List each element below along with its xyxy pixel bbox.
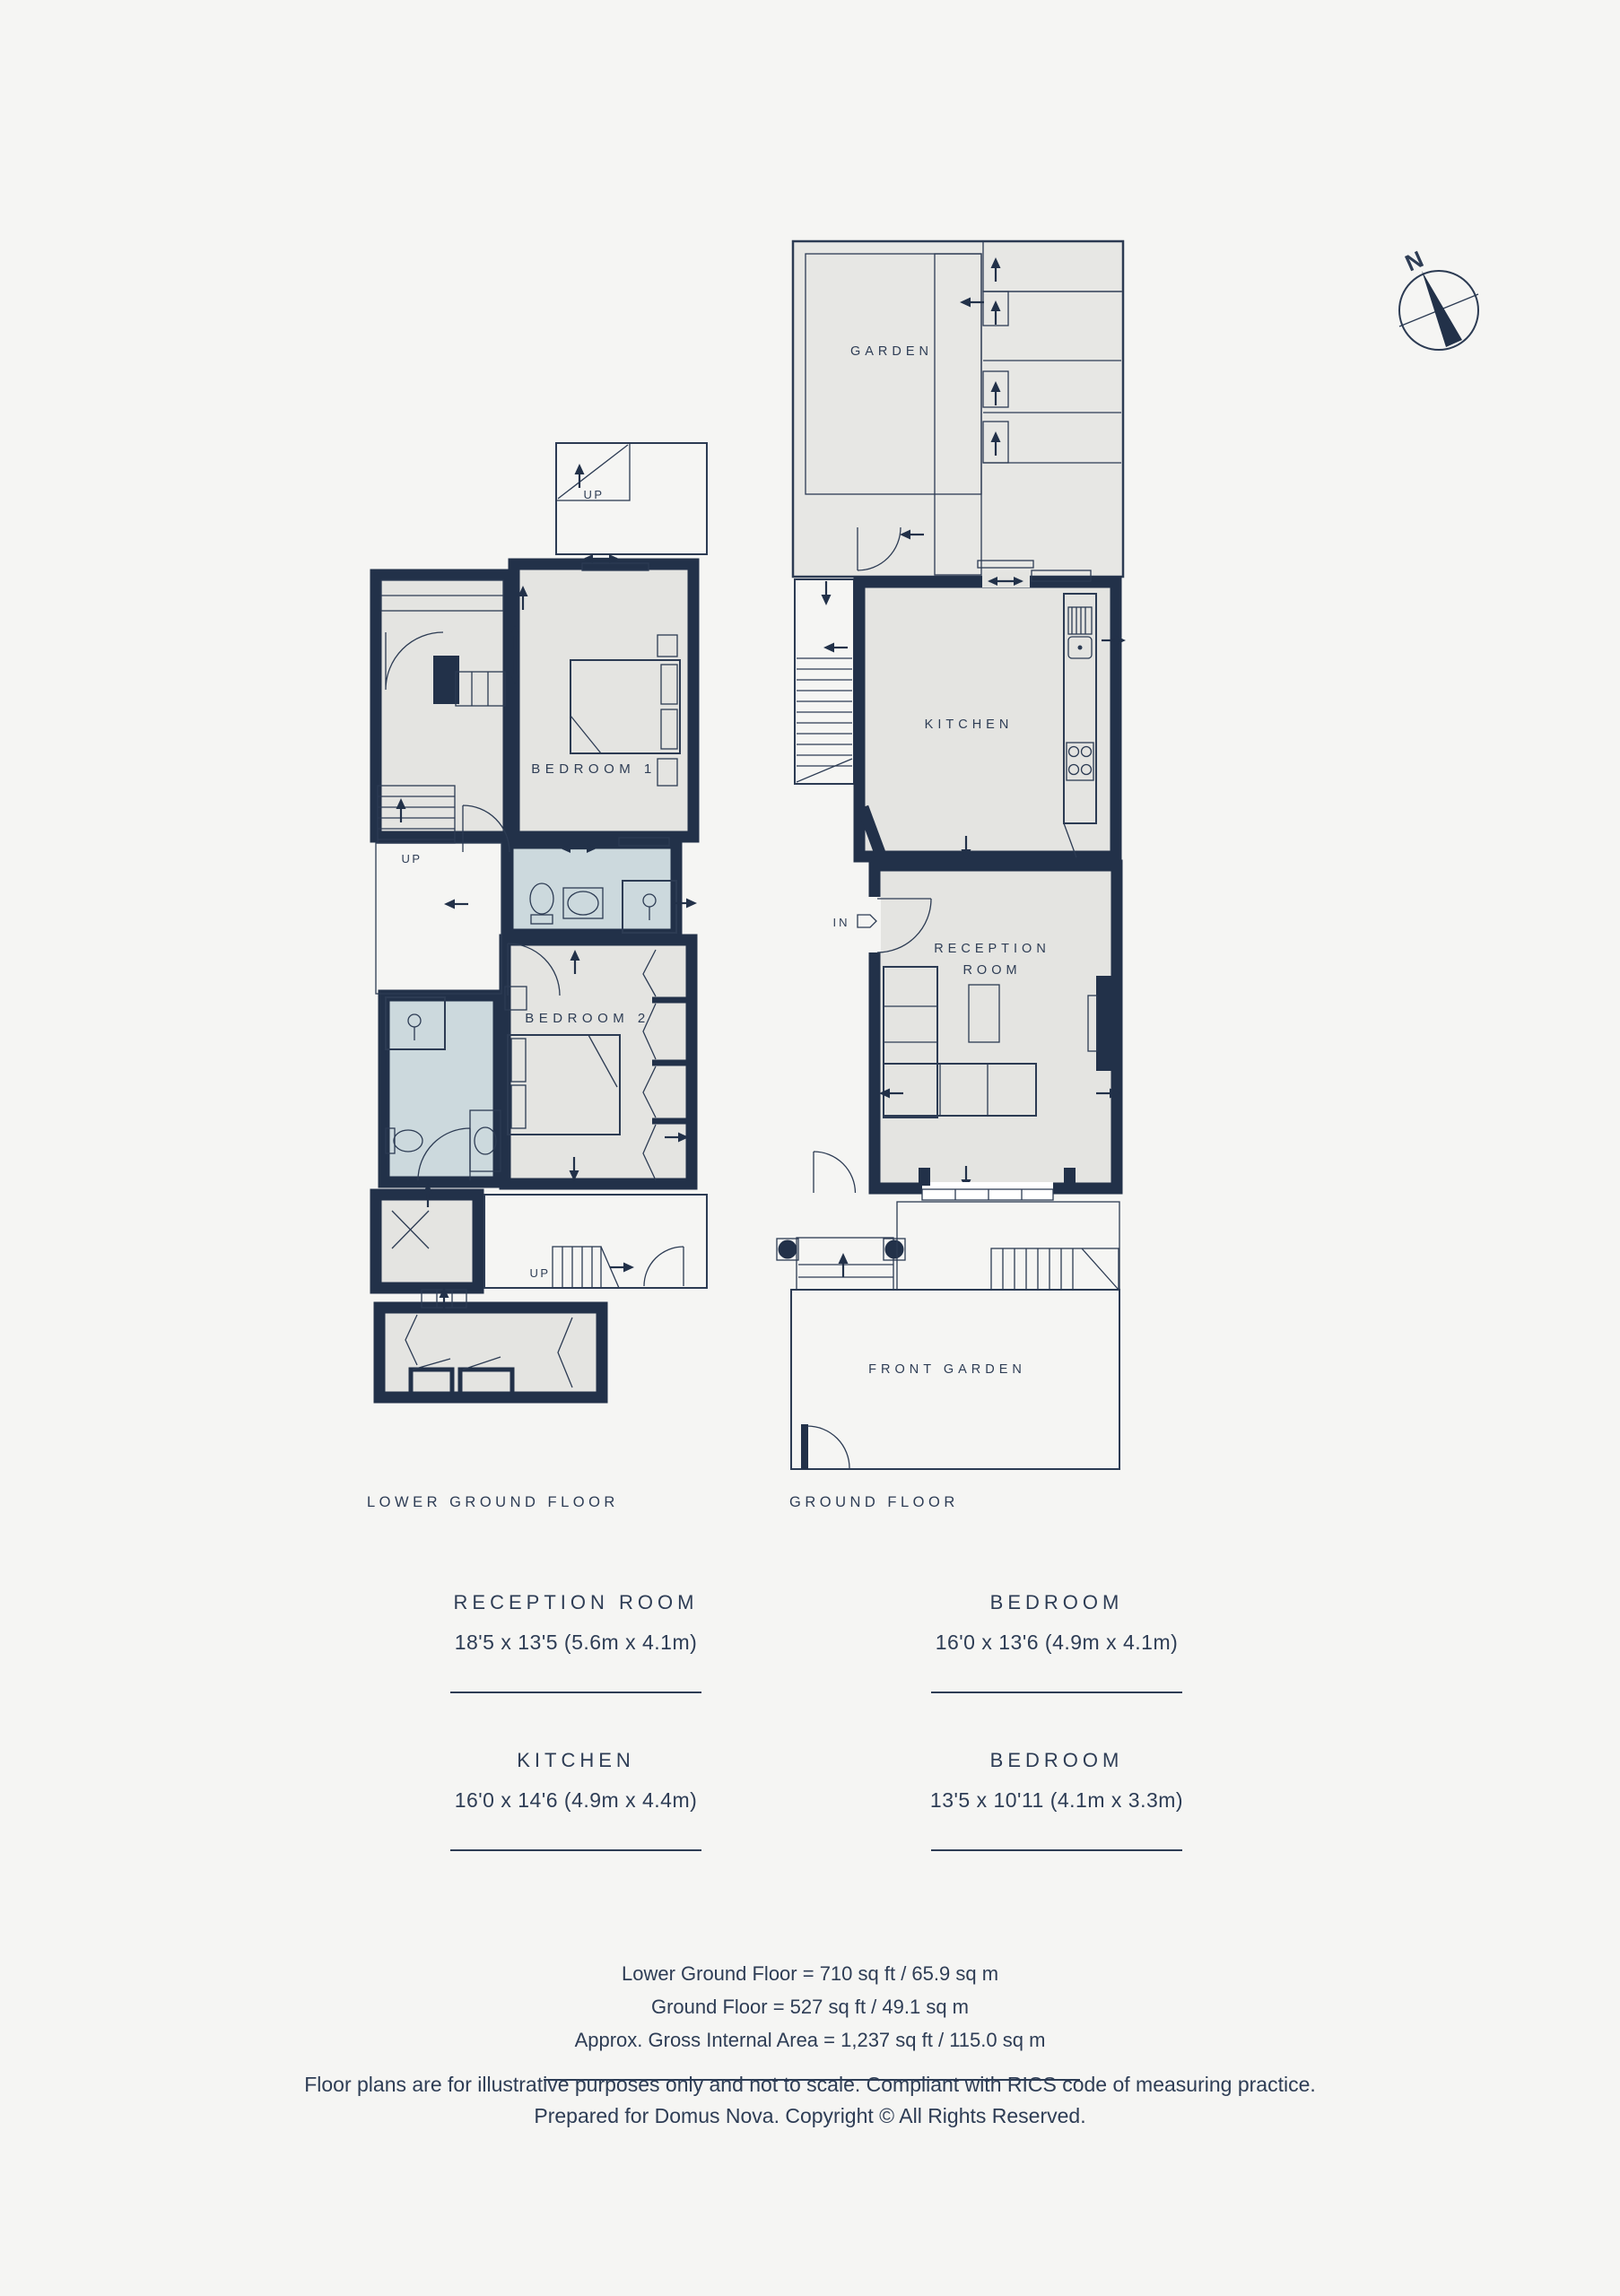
floorplan-page: UP UP	[0, 0, 1620, 2296]
lg-patio-up-label: UP	[529, 1266, 550, 1280]
dim-room-name: BEDROOM	[859, 1591, 1254, 1614]
gf-staircase	[795, 579, 854, 784]
dim-divider	[931, 1849, 1182, 1851]
gf-porch	[777, 1238, 905, 1290]
lg-lobby	[376, 1195, 478, 1288]
gf-gate-door	[807, 1426, 849, 1468]
dim-room-size: 16'0 x 13'6 (4.9m x 4.1m)	[859, 1631, 1254, 1655]
dim-block-reception: RECEPTION ROOM 18'5 x 13'5 (5.6m x 4.1m)	[379, 1591, 773, 1655]
compass-needle	[1422, 271, 1462, 347]
compass-north-label: N	[1401, 245, 1427, 276]
footer-copyright: Prepared for Domus Nova. Copyright © All…	[0, 2104, 1620, 2128]
footer-disclaimer: Floor plans are for illustrative purpose…	[0, 2073, 1620, 2097]
front-garden-label: FRONT GARDEN	[868, 1362, 1026, 1377]
area-summary: Lower Ground Floor = 710 sq ft / 65.9 sq…	[0, 1957, 1620, 2057]
area-gross-internal: Approx. Gross Internal Area = 1,237 sq f…	[0, 2023, 1620, 2057]
gf-garden: GARDEN	[793, 241, 1123, 577]
dim-divider	[450, 1849, 701, 1851]
ground-floor-label: GROUND FLOOR	[789, 1494, 959, 1511]
lg-terrace: UP	[556, 443, 707, 554]
lower-ground-plan: UP UP	[376, 443, 707, 1397]
bedroom-2-label: BEDROOM 2	[525, 1011, 650, 1026]
dim-room-name: BEDROOM	[859, 1749, 1254, 1772]
kitchen-label: KITCHEN	[925, 717, 1014, 732]
floorplan-canvas: UP UP	[0, 0, 1620, 2296]
dim-room-name: KITCHEN	[379, 1749, 773, 1772]
reception-label-line1: RECEPTION	[934, 942, 1050, 956]
dim-room-size: 16'0 x 14'6 (4.9m x 4.4m)	[379, 1788, 773, 1813]
area-lower-ground: Lower Ground Floor = 710 sq ft / 65.9 sq…	[0, 1957, 1620, 1990]
lg-stairs-up-label: UP	[401, 852, 422, 865]
bedroom-1-label: BEDROOM 1	[531, 761, 657, 777]
dim-room-size: 18'5 x 13'5 (5.6m x 4.1m)	[379, 1631, 773, 1655]
gf-side-door	[814, 1152, 856, 1193]
lg-terrace-up-label: UP	[583, 488, 604, 501]
lg-patio: UP	[484, 1195, 707, 1288]
dim-divider	[450, 1692, 701, 1693]
lower-ground-floor-label: LOWER GROUND FLOOR	[367, 1494, 619, 1511]
dim-block-bedroom1: BEDROOM 16'0 x 13'6 (4.9m x 4.1m)	[859, 1591, 1254, 1655]
compass-rose: N	[1399, 245, 1478, 350]
reception-room	[875, 865, 1117, 1188]
dim-divider	[931, 1692, 1182, 1693]
entrance-label: IN	[833, 916, 850, 929]
reception-label-line2: ROOM	[962, 963, 1021, 978]
bedroom-1-room	[514, 564, 693, 837]
gf-front-garden: FRONT GARDEN	[791, 1290, 1119, 1469]
gf-walkway-steps	[897, 1202, 1119, 1290]
dim-room-name: RECEPTION ROOM	[379, 1591, 773, 1614]
area-ground: Ground Floor = 527 sq ft / 49.1 sq m	[0, 1990, 1620, 2023]
dim-room-size: 13'5 x 10'11 (4.1m x 3.3m)	[859, 1788, 1254, 1813]
ground-floor-plan: GARDEN	[777, 241, 1126, 1469]
garden-label: GARDEN	[850, 344, 933, 359]
dim-block-kitchen: KITCHEN 16'0 x 14'6 (4.9m x 4.4m)	[379, 1749, 773, 1813]
dim-block-bedroom2: BEDROOM 13'5 x 10'11 (4.1m x 3.3m)	[859, 1749, 1254, 1813]
lg-patio-door	[644, 1247, 684, 1286]
